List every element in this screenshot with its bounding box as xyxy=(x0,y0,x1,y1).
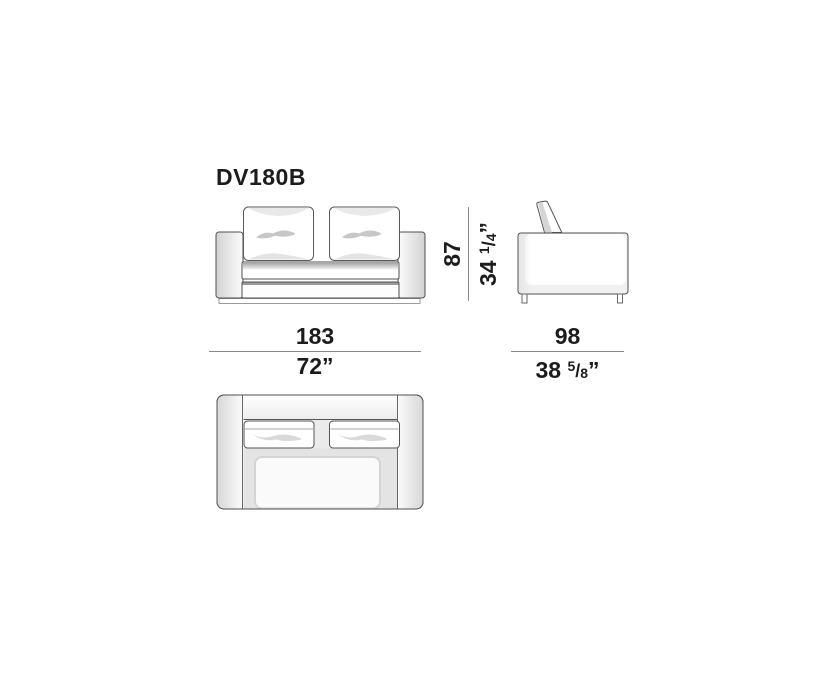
catalog-dimension-sheet: DV180B xyxy=(0,0,840,679)
width-inches-label: 72” xyxy=(209,353,421,379)
sofa-side-view-drawing xyxy=(515,198,637,310)
product-model-title: DV180B xyxy=(216,164,306,191)
width-dimension-line xyxy=(209,351,421,352)
depth-inches-label: 38 5/8” xyxy=(511,353,624,386)
sofa-top-view-drawing xyxy=(213,392,428,513)
sofa-front-view-drawing xyxy=(210,198,435,310)
height-dimension-line xyxy=(468,207,469,301)
width-cm-label: 183 xyxy=(209,323,421,349)
depth-dimension: 98 38 5/8” xyxy=(511,323,624,386)
width-dimension: 183 72” xyxy=(209,323,421,379)
depth-dimension-line xyxy=(511,351,624,352)
depth-cm-label: 98 xyxy=(511,323,624,349)
height-inches-label: 34 1/4” xyxy=(471,199,497,309)
height-cm-label: 87 xyxy=(439,207,465,301)
